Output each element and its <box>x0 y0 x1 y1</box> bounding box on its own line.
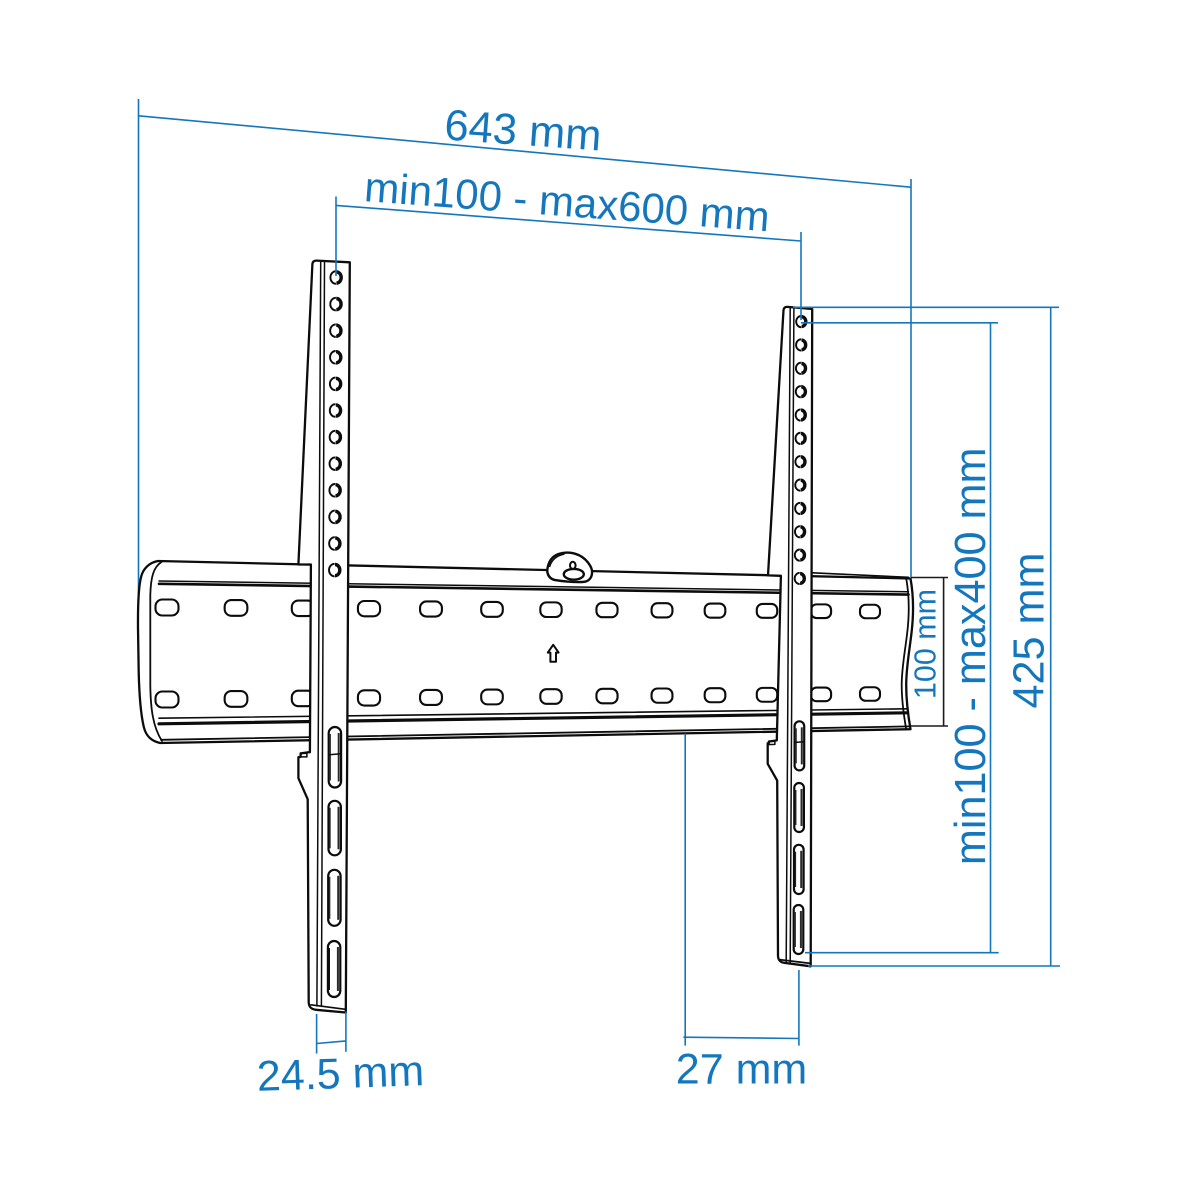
svg-text:27 mm: 27 mm <box>676 1046 807 1094</box>
svg-text:min100 - max400 mm: min100 - max400 mm <box>947 447 995 865</box>
svg-text:24.5 mm: 24.5 mm <box>256 1047 425 1101</box>
svg-text:425 mm: 425 mm <box>1006 552 1054 708</box>
svg-text:100 mm: 100 mm <box>909 589 943 699</box>
